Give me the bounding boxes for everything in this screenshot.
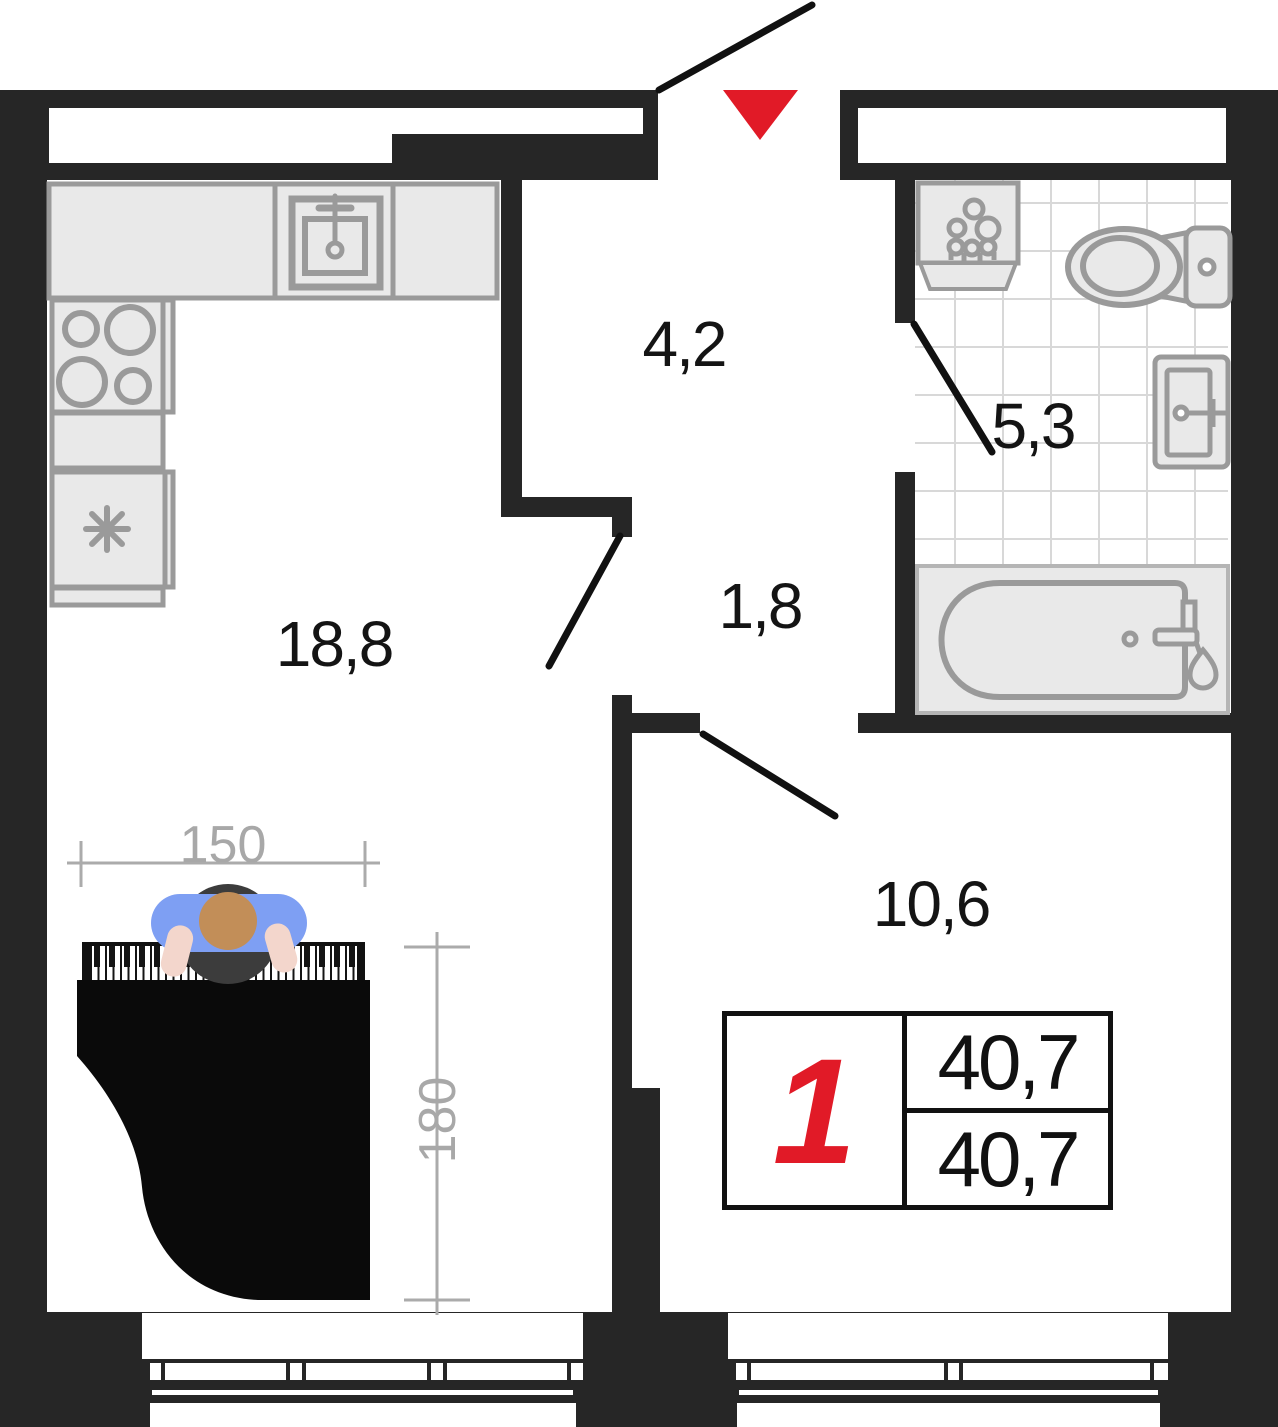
room-label-bedroom: 10,6 bbox=[873, 867, 990, 941]
entrance-door-swing bbox=[659, 5, 812, 90]
person-icon bbox=[151, 884, 307, 984]
room-label-corridor: 1,8 bbox=[719, 569, 802, 643]
room-label-hallway: 4,2 bbox=[643, 307, 726, 381]
apartment-info-table: 1 40,7 40,7 bbox=[722, 1011, 1113, 1210]
dimension-150-label: 150 bbox=[180, 816, 267, 874]
floor-plan: 150 180 18,8 4,2 5,3 1,8 10,6 1 40,7 40,… bbox=[0, 0, 1278, 1427]
living-area: 40,7 bbox=[907, 1113, 1108, 1205]
kitchen-counter bbox=[49, 184, 497, 298]
dimension-180-label: 180 bbox=[409, 1077, 467, 1164]
fridge-icon bbox=[52, 413, 173, 605]
grand-piano-icon bbox=[77, 980, 370, 1300]
bathroom-door-swing bbox=[914, 324, 992, 452]
snowflake-icon bbox=[86, 508, 128, 550]
total-area: 40,7 bbox=[907, 1016, 1108, 1113]
fixtures-layer: 150 180 bbox=[0, 0, 1278, 1427]
entrance-arrow-icon bbox=[723, 90, 798, 140]
washing-machine-icon bbox=[918, 183, 1018, 289]
living-door-swing bbox=[549, 536, 620, 666]
room-label-bathroom: 5,3 bbox=[992, 389, 1075, 463]
bathroom-sink-icon bbox=[1155, 357, 1228, 467]
toilet-icon bbox=[1068, 228, 1230, 306]
kitchen-sink-icon bbox=[292, 196, 380, 287]
bedroom-door-swing bbox=[703, 734, 835, 816]
stove-icon bbox=[52, 300, 173, 412]
room-count: 1 bbox=[773, 1036, 856, 1186]
room-label-kitchen-living: 18,8 bbox=[276, 607, 393, 681]
room-count-cell: 1 bbox=[727, 1016, 907, 1205]
bathtub-icon bbox=[917, 566, 1228, 713]
